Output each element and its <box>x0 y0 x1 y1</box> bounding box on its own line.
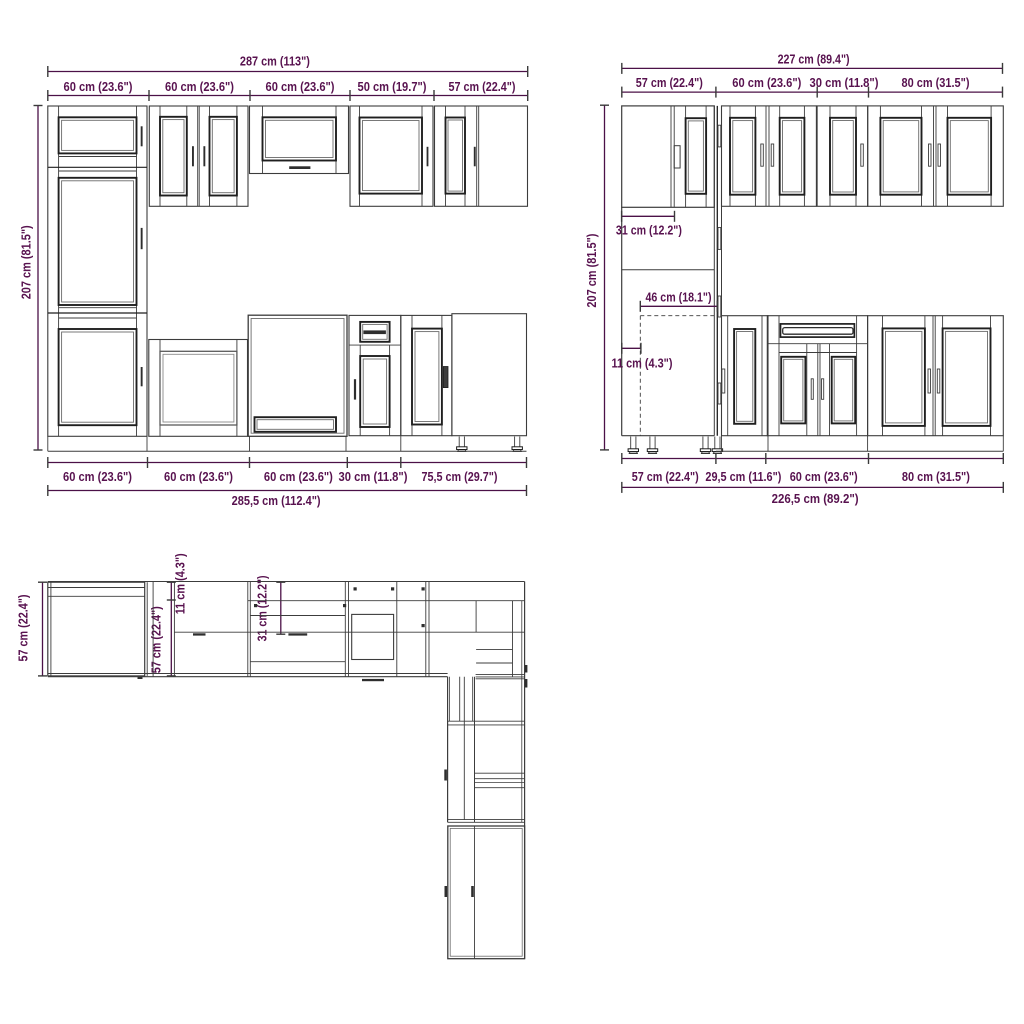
svg-text:60 cm (23.6"): 60 cm (23.6") <box>790 470 858 484</box>
svg-text:287 cm (113"): 287 cm (113") <box>240 55 310 69</box>
svg-text:80 cm (31.5"): 80 cm (31.5") <box>902 76 970 90</box>
svg-text:60 cm (23.6"): 60 cm (23.6") <box>732 76 801 90</box>
svg-text:50 cm (19.7"): 50 cm (19.7") <box>358 80 427 94</box>
svg-text:57 cm (22.4"): 57 cm (22.4") <box>449 80 516 94</box>
svg-text:57 cm (22.4"): 57 cm (22.4") <box>150 606 164 673</box>
svg-text:75,5 cm (29.7"): 75,5 cm (29.7") <box>422 470 498 484</box>
svg-text:60 cm (23.6"): 60 cm (23.6") <box>264 470 333 484</box>
svg-text:30 cm (11.8"): 30 cm (11.8") <box>810 76 879 90</box>
svg-text:60 cm (23.6"): 60 cm (23.6") <box>164 470 233 484</box>
svg-text:207 cm (81.5"): 207 cm (81.5") <box>585 234 599 308</box>
svg-text:11 cm (4.3"): 11 cm (4.3") <box>612 357 673 371</box>
svg-text:30 cm (11.8"): 30 cm (11.8") <box>339 470 408 484</box>
svg-text:57 cm (22.4"): 57 cm (22.4") <box>632 470 699 484</box>
svg-text:60 cm (23.6"): 60 cm (23.6") <box>64 80 133 94</box>
svg-text:31 cm (12.2"): 31 cm (12.2") <box>256 575 270 641</box>
svg-text:60 cm (23.6"): 60 cm (23.6") <box>165 80 234 94</box>
svg-text:57 cm (22.4"): 57 cm (22.4") <box>636 76 703 90</box>
svg-text:285,5 cm (112.4"): 285,5 cm (112.4") <box>232 494 321 508</box>
svg-text:60 cm (23.6"): 60 cm (23.6") <box>63 470 132 484</box>
svg-text:227 cm (89.4"): 227 cm (89.4") <box>778 52 850 66</box>
svg-text:80 cm (31.5"): 80 cm (31.5") <box>902 470 970 484</box>
svg-text:31 cm (12.2"): 31 cm (12.2") <box>616 224 682 238</box>
svg-text:60 cm (23.6"): 60 cm (23.6") <box>266 80 335 94</box>
svg-text:226,5 cm (89.2"): 226,5 cm (89.2") <box>772 492 859 506</box>
svg-text:46 cm (18.1"): 46 cm (18.1") <box>646 291 712 305</box>
svg-text:57 cm (22.4"): 57 cm (22.4") <box>17 595 31 662</box>
svg-text:11 cm (4.3"): 11 cm (4.3") <box>174 553 188 614</box>
svg-text:207 cm (81.5"): 207 cm (81.5") <box>20 225 34 299</box>
svg-text:29,5 cm (11.6"): 29,5 cm (11.6") <box>705 470 781 484</box>
